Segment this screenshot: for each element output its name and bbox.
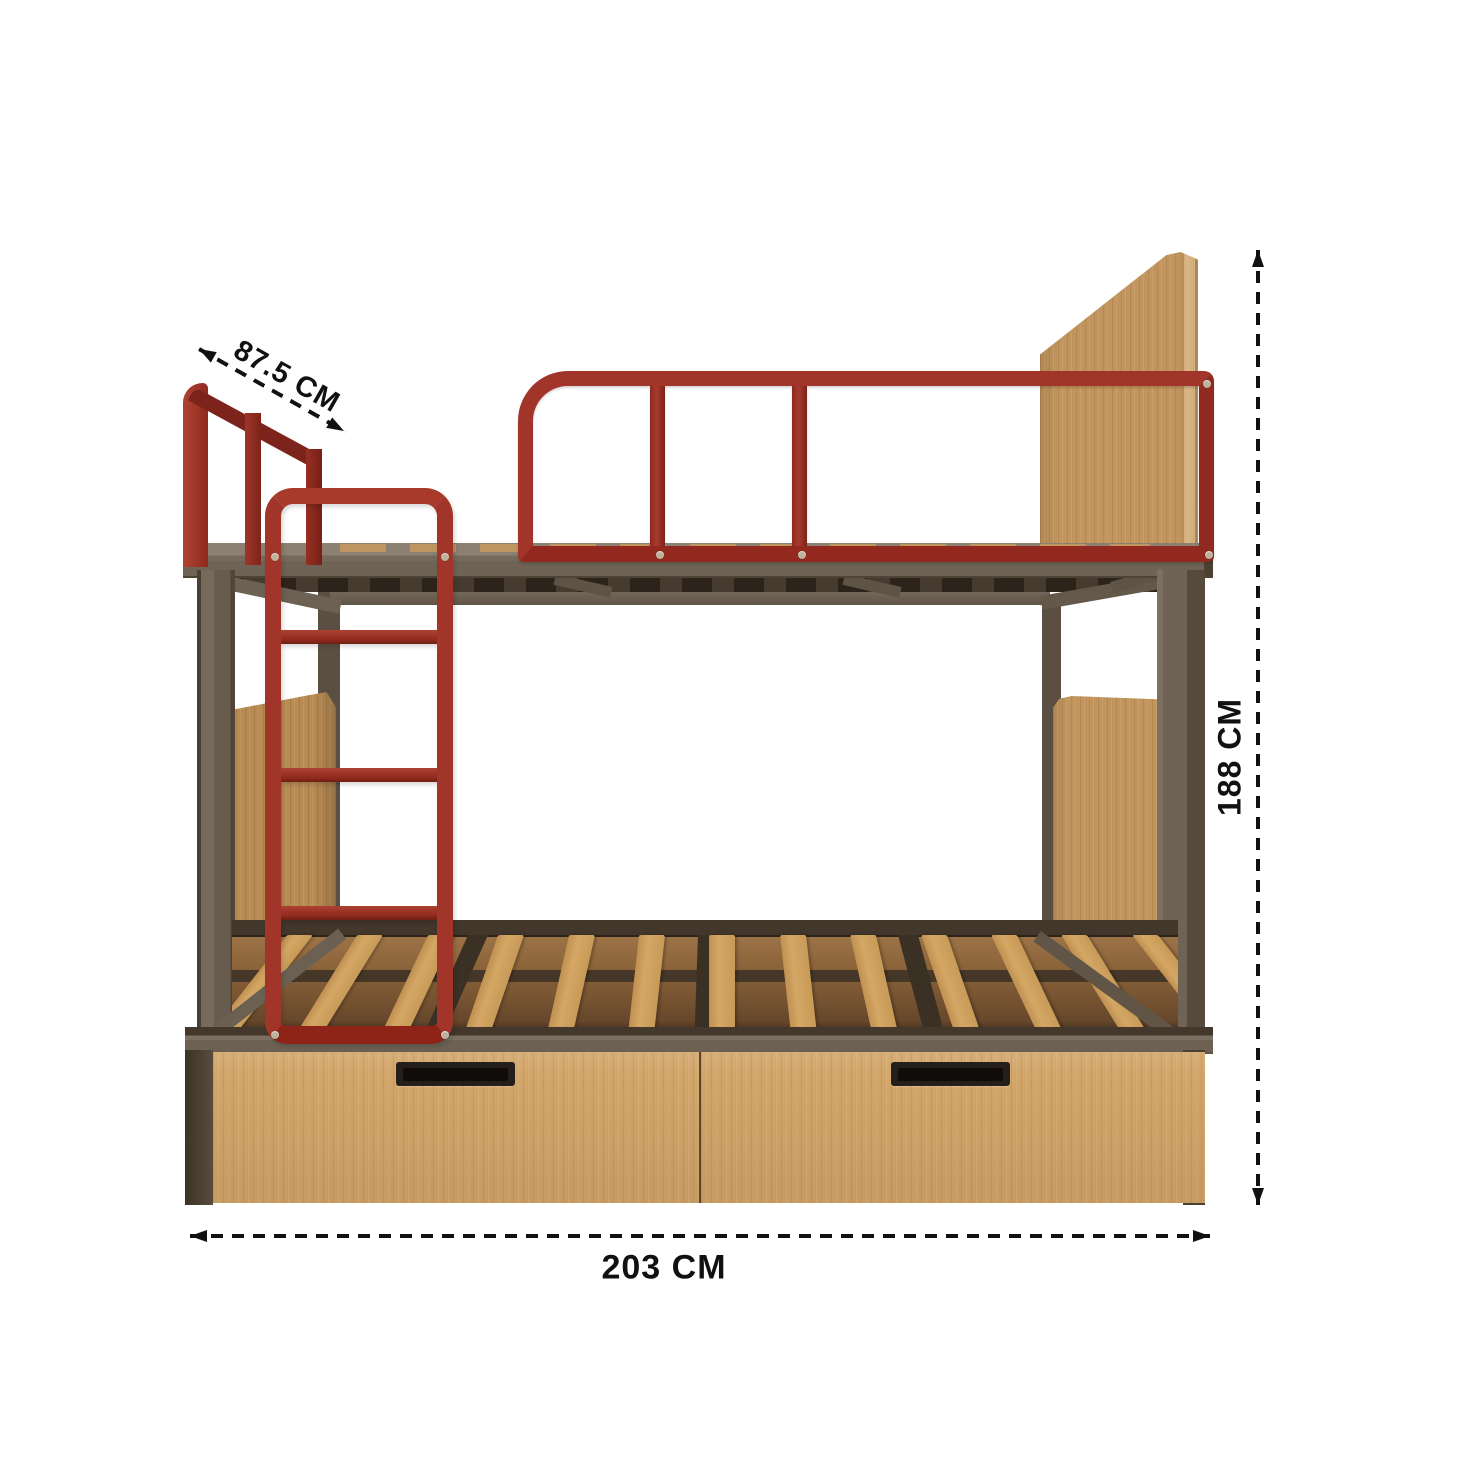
ladder-rung xyxy=(281,630,437,644)
width-arrow-right xyxy=(1193,1230,1210,1242)
mattress-slat xyxy=(850,935,898,1033)
drawer-handle xyxy=(891,1062,1010,1086)
height-dimension-line xyxy=(1256,250,1260,1205)
mattress-slat xyxy=(628,935,665,1033)
drawer-handle xyxy=(396,1062,515,1086)
guardrail-divider xyxy=(792,386,807,546)
bolt-screw xyxy=(798,551,806,559)
height-arrow-bottom xyxy=(1252,1188,1264,1205)
bolt-screw xyxy=(271,1031,279,1039)
bolt-screw xyxy=(656,551,664,559)
bolt-screw xyxy=(441,553,449,561)
height-dimension-label: 188 CM xyxy=(1212,698,1249,816)
guardrail-divider xyxy=(650,386,665,546)
drawer-front xyxy=(213,1052,701,1203)
bolt-screw xyxy=(441,1031,449,1039)
mattress-slat xyxy=(547,935,595,1033)
mattress-slat xyxy=(709,935,735,1033)
bolt-screw xyxy=(1203,380,1211,388)
front-left-leg xyxy=(197,570,235,1038)
top-bunk-front-guardrail xyxy=(518,371,1214,562)
bunk-bed-dimension-diagram: 87.5 CM 188 CM 203 CM xyxy=(0,0,1459,1460)
mattress-slat xyxy=(780,935,817,1033)
width-arrow-left xyxy=(190,1230,207,1242)
bolt-screw xyxy=(1205,551,1213,559)
drawer-row xyxy=(213,1052,1205,1203)
ladder-rung xyxy=(281,906,437,920)
drawer-front xyxy=(701,1052,1205,1203)
side-guardrail-front-post xyxy=(183,383,208,567)
base-left-edge xyxy=(185,1050,213,1205)
bolt-screw xyxy=(271,553,279,561)
ladder xyxy=(265,488,453,1044)
ladder-rung xyxy=(281,768,437,782)
width-dimension-label: 203 CM xyxy=(601,1249,726,1288)
height-arrow-top xyxy=(1252,250,1264,267)
width-dimension-line xyxy=(190,1234,1210,1238)
side-guardrail-mid-post xyxy=(245,413,261,565)
